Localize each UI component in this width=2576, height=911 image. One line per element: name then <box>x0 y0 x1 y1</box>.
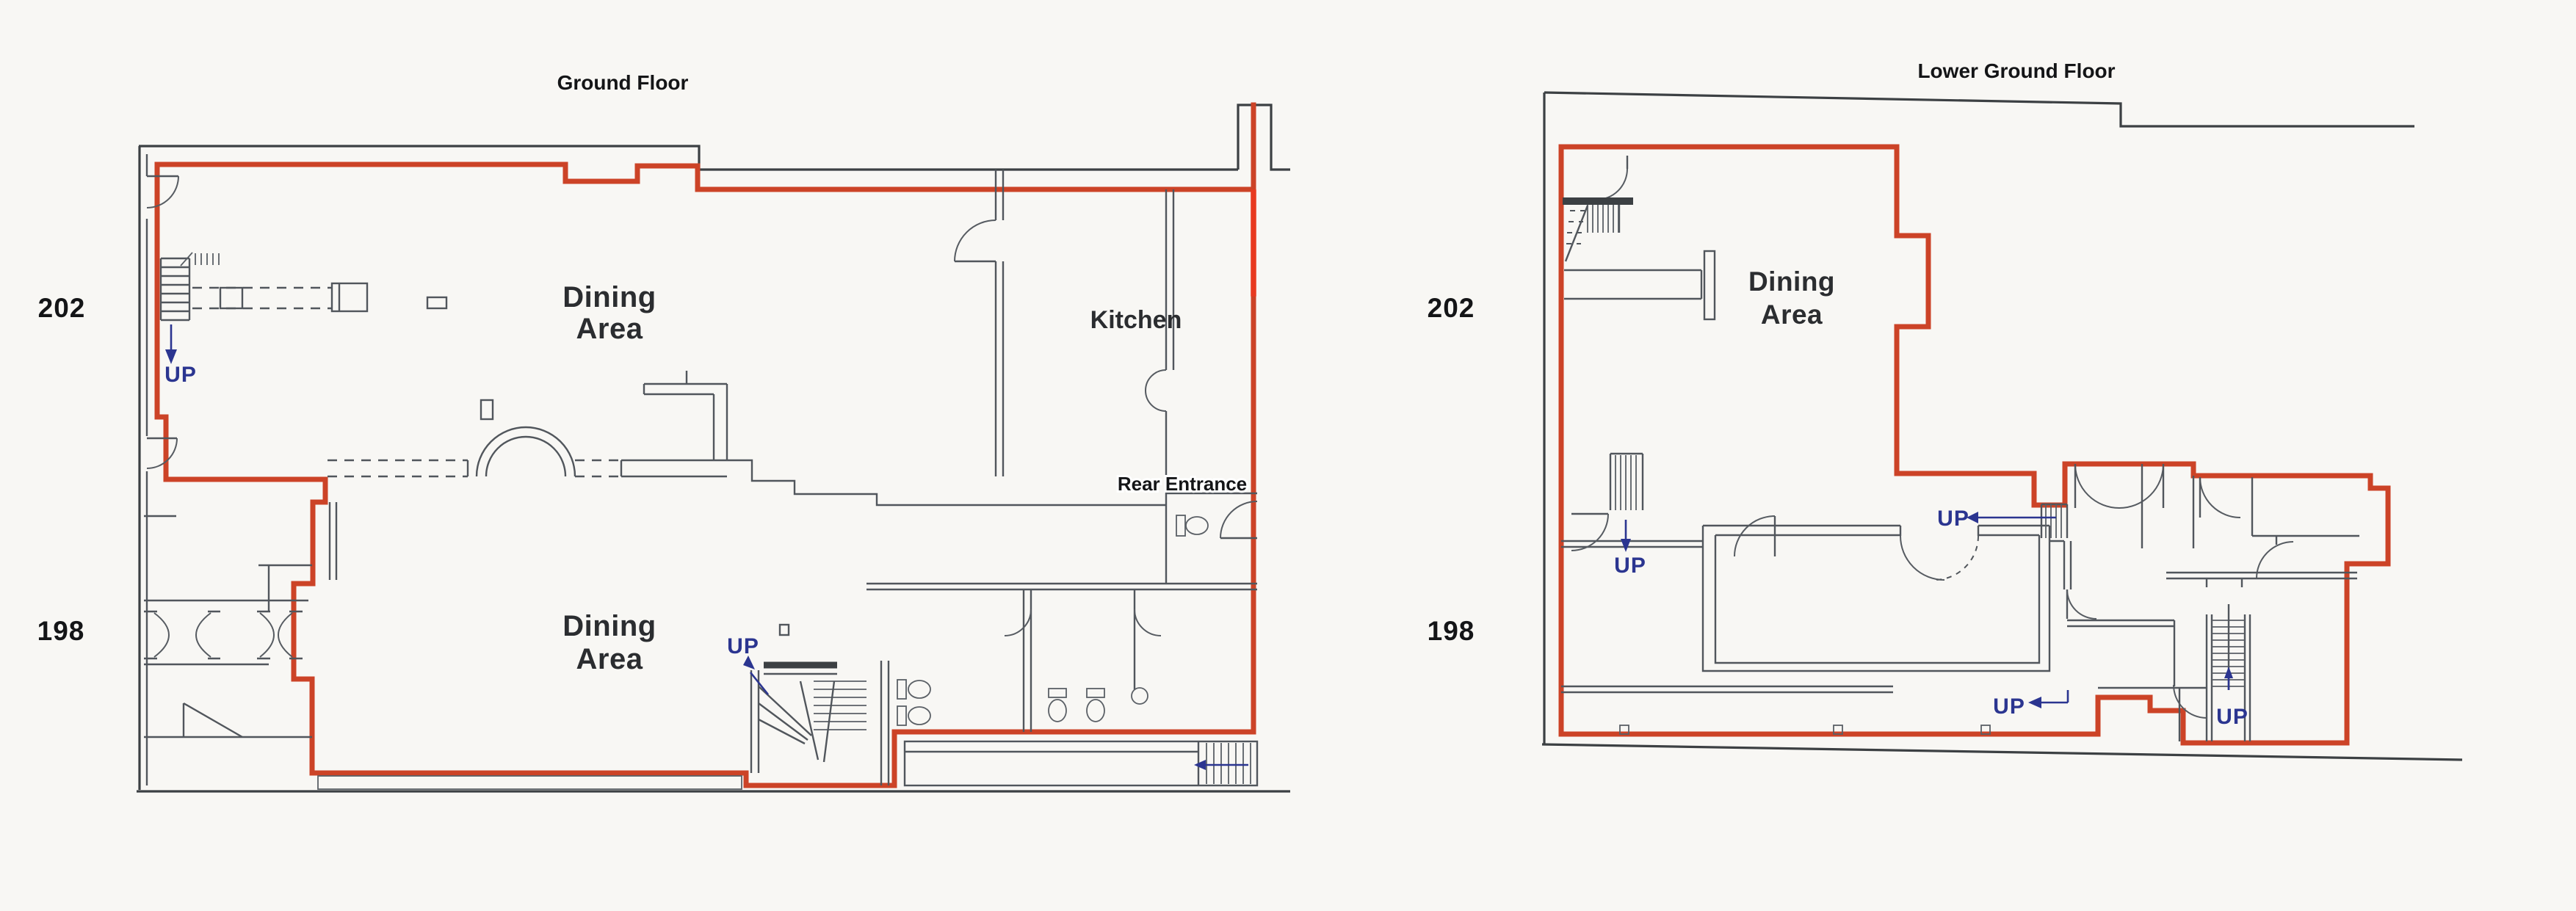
wall-segment <box>1005 609 1161 636</box>
left-rooms-lower-ground: UP <box>1561 454 1893 692</box>
wall-segment <box>328 460 621 476</box>
wall-segment <box>2193 476 2359 548</box>
wall-segment <box>1146 370 1166 411</box>
wall-segment <box>1588 205 1618 233</box>
red-demise-boundary-lower-ground <box>1561 147 2388 743</box>
site-boundary-line <box>1542 744 2462 760</box>
wall-segment <box>1900 536 1944 580</box>
direction-arrow-icon <box>1194 760 1206 770</box>
wall-segment <box>905 741 1198 785</box>
up-label-lgf-right: UP <box>2216 705 2248 729</box>
wc-cistern <box>1087 689 1104 697</box>
wall-segment <box>181 253 219 266</box>
wall-segment <box>258 502 336 611</box>
ground-floor-plan: UP Dining Area Kitchen <box>37 71 1290 791</box>
red-demise-boundary-ground-floor <box>157 105 1253 785</box>
wall-segment <box>486 437 565 476</box>
rear-entrance-label: Rear Entrance <box>1118 473 1247 495</box>
street-number-202-left: 202 <box>38 293 86 323</box>
wc-pan <box>1087 700 1104 722</box>
ground-floor-title: Ground Floor <box>557 71 689 94</box>
wall-segment <box>866 584 1257 589</box>
wall-segment <box>468 460 621 476</box>
rear-entrance-lobby <box>1166 493 1257 584</box>
up-arrow-icon <box>2028 697 2041 708</box>
wc-pan <box>1049 700 1066 722</box>
dining-area-upper-label-line2: Area <box>576 313 643 345</box>
central-stair-core <box>1703 526 2049 671</box>
wall-segment <box>477 427 575 476</box>
wall-segment <box>1564 270 1701 299</box>
dining-area-upper-label-line1: Dining <box>562 281 656 313</box>
wall-segment <box>2075 464 2163 548</box>
wall-segment <box>161 258 189 320</box>
up-label-lgf-left: UP <box>1614 554 1646 578</box>
basin <box>1132 688 1148 704</box>
staircase-upper-left: UP <box>161 253 367 387</box>
wall-segment <box>1596 169 1627 200</box>
wall-segment <box>1566 211 1585 244</box>
floorplan-sheet: UP Dining Area Kitchen <box>0 0 2576 911</box>
wall-segment <box>1206 743 1251 784</box>
wall-segment <box>1704 251 1715 319</box>
up-label-ground-left: UP <box>164 363 197 387</box>
dining-area-lower-ground-label-line1: Dining <box>1748 266 1835 297</box>
entrance-door-arcs <box>147 176 178 468</box>
wc-pan <box>908 680 930 698</box>
wc-pan <box>1186 517 1208 534</box>
wc-cistern <box>1176 515 1185 536</box>
column <box>427 297 446 308</box>
wall-segment <box>996 170 1003 476</box>
dining-area-lower-label-line1: Dining <box>562 610 656 642</box>
wall-segment <box>644 371 727 460</box>
dining-area-lower-label-line2: Area <box>576 643 643 675</box>
wall-segment <box>2046 504 2061 538</box>
wc-pan <box>908 707 930 725</box>
up-label-lgf-bottom: UP <box>1993 694 2025 719</box>
street-number-198-left: 198 <box>37 616 85 646</box>
archway-and-partition <box>328 371 1166 505</box>
wall-segment <box>144 516 312 737</box>
street-number-198-right: 198 <box>1428 616 1475 646</box>
wall-segment <box>318 776 742 789</box>
up-label-lgf-middle: UP <box>1937 507 1969 531</box>
column <box>481 400 493 419</box>
wall-segment <box>192 288 332 308</box>
wall-segment <box>2200 477 2240 518</box>
wc-cistern <box>1049 689 1066 697</box>
staircase-lower-middle: UP <box>727 634 889 785</box>
lower-ground-floor-title: Lower Ground Floor <box>1917 59 2115 82</box>
wall-segment <box>157 105 1253 785</box>
up-arrow-icon <box>165 349 177 364</box>
wall-segment <box>2067 589 2096 619</box>
wall-segment <box>751 661 889 785</box>
up-arrow-bottom-left: UP <box>1993 690 2068 719</box>
wall-segment <box>157 164 1251 189</box>
wall-segment <box>621 460 727 476</box>
wall-segment <box>1563 197 1633 205</box>
up-arrow-line <box>2041 690 2068 703</box>
wall-segment <box>1561 541 1893 692</box>
wall-segment <box>2049 541 2071 589</box>
up-arrow-icon <box>1621 539 1631 552</box>
wall-segment <box>1703 526 2049 671</box>
wall-segment <box>154 613 292 657</box>
wall-segment <box>1734 516 1775 556</box>
up-label-ground-middle: UP <box>727 634 759 658</box>
wall-segment <box>2067 620 2174 686</box>
up-arrow-icon <box>2224 667 2233 678</box>
wall-segment <box>332 283 367 311</box>
bar-counter <box>1564 251 1715 319</box>
lower-ground-outer-walls <box>1542 92 2462 760</box>
wall-segment <box>147 438 177 468</box>
wall-segment <box>1616 455 1636 510</box>
wall-segment <box>2075 464 2163 508</box>
wall-segment <box>727 460 1166 505</box>
column <box>780 625 789 635</box>
wall-segment <box>184 703 242 737</box>
wall-segment <box>1715 535 2039 663</box>
back-of-house-block <box>144 502 336 737</box>
wall-segment <box>1166 189 1173 493</box>
lower-ground-floor-plan: Dining Area UP UP <box>1428 59 2462 760</box>
wall-segment <box>1934 536 1978 580</box>
wc-cistern <box>897 706 906 725</box>
wall-segment <box>1238 105 1290 170</box>
wall-segment <box>220 288 242 308</box>
wall-segment <box>1544 92 2414 126</box>
pavement-structures <box>318 741 1257 789</box>
staircase-top-left <box>1563 156 1633 261</box>
top-rooms-lower-ground <box>2075 464 2359 578</box>
kitchen-label: Kitchen <box>1090 306 1182 334</box>
wc-cistern <box>897 680 906 699</box>
staircase-middle-up: UP <box>1937 504 2067 538</box>
toilet-block <box>866 584 1257 732</box>
wall-segment <box>1571 514 1608 551</box>
wall-segment <box>2166 573 2357 587</box>
wall-segment <box>814 681 866 730</box>
wall-segment <box>1024 589 1135 732</box>
street-number-202-right: 202 <box>1428 293 1475 323</box>
wall-segment <box>147 176 178 208</box>
dining-area-lower-ground-label-line2: Area <box>1761 300 1823 330</box>
wall-segment <box>955 220 996 261</box>
